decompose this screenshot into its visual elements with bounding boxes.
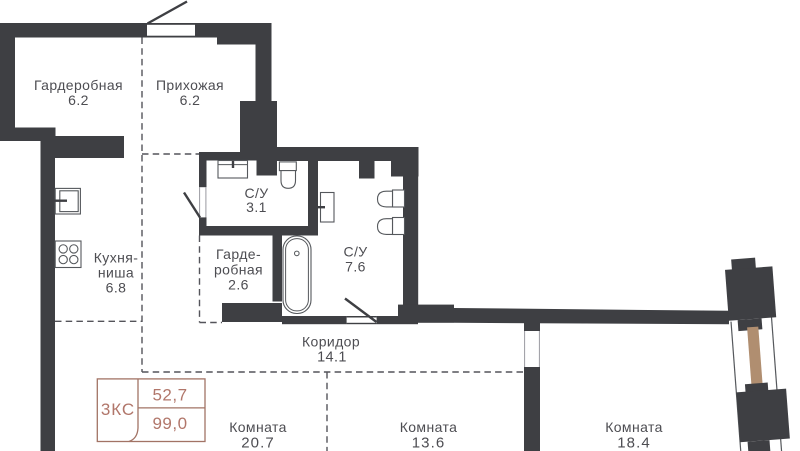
svg-text:6.8: 6.8 [106,280,127,296]
svg-text:Комната: Комната [229,419,287,435]
svg-text:13.6: 13.6 [412,435,446,451]
svg-text:52,7: 52,7 [152,386,187,405]
svg-text:робная: робная [214,261,263,277]
svg-text:6.2: 6.2 [68,92,89,108]
svg-text:Прихожая: Прихожая [156,77,224,93]
svg-text:С/У: С/У [343,244,367,260]
svg-text:Гардеробная: Гардеробная [34,77,123,93]
svg-text:6.2: 6.2 [180,92,201,108]
svg-text:18.4: 18.4 [617,435,651,451]
svg-text:Коридор: Коридор [302,334,360,350]
svg-text:14.1: 14.1 [317,349,347,365]
svg-text:7.6: 7.6 [345,259,366,275]
svg-text:20.7: 20.7 [241,435,275,451]
svg-text:99,0: 99,0 [152,414,187,433]
svg-text:2.6: 2.6 [228,276,249,292]
svg-text:Комната: Комната [605,419,663,435]
svg-text:3КС: 3КС [101,400,135,419]
svg-text:Гарде-: Гарде- [216,246,261,262]
svg-text:3.1: 3.1 [246,199,267,215]
svg-text:Кухня-: Кухня- [94,250,139,266]
svg-text:ниша: ниша [98,265,134,281]
svg-text:Комната: Комната [400,419,458,435]
